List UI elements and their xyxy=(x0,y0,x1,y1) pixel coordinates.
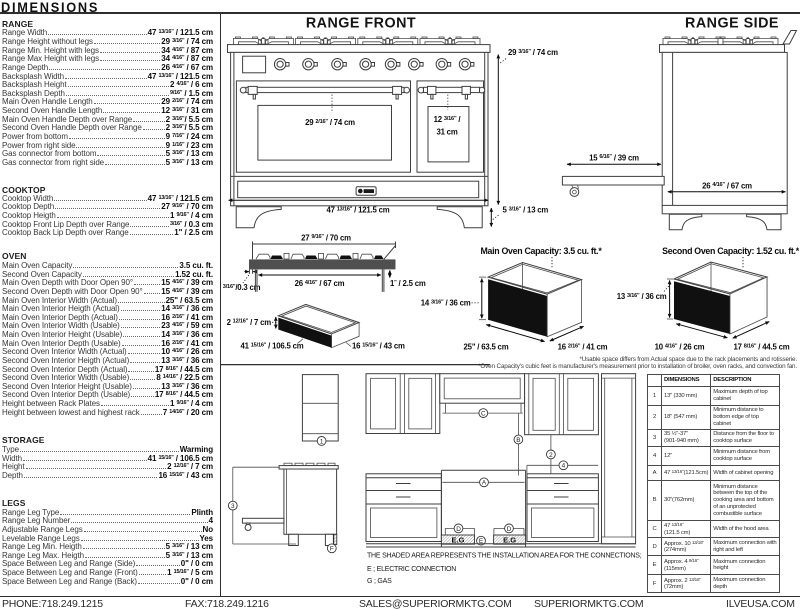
svg-text:47 13/16" / 121.5 cm: 47 13/16" / 121.5 cm xyxy=(327,206,390,215)
svg-text:E.G: E.G xyxy=(452,536,465,545)
svg-text:26 4/16" / 67 cm: 26 4/16" / 67 cm xyxy=(295,279,345,288)
svg-text:16 15/16" / 43 cm: 16 15/16" / 43 cm xyxy=(352,342,405,351)
svg-text:1: 1 xyxy=(320,438,324,445)
svg-text:D: D xyxy=(456,526,461,533)
svg-text:10 4/16" / 26 cm: 10 4/16" / 26 cm xyxy=(655,343,705,352)
svg-text:E.G: E.G xyxy=(503,536,516,545)
svg-text:RANGE FRONT: RANGE FRONT xyxy=(306,16,416,32)
svg-text:E ; ELECTRIC CONNECTION: E ; ELECTRIC CONNECTION xyxy=(367,566,456,573)
svg-text:5 3/16" / 13 cm: 5 3/16" / 13 cm xyxy=(503,206,549,215)
svg-text:A: A xyxy=(482,480,487,487)
svg-text:29 2/16" / 74 cm: 29 2/16" / 74 cm xyxy=(305,118,355,127)
svg-text:1" / 2.5 cm: 1" / 2.5 cm xyxy=(390,279,426,288)
svg-text:F: F xyxy=(330,546,334,553)
svg-text:14 3/16" / 36 cm: 14 3/16" / 36 cm xyxy=(421,299,471,308)
svg-text:17 8/16" / 44.5 cm: 17 8/16" / 44.5 cm xyxy=(734,343,790,352)
svg-text:27 9/16" / 70 cm: 27 9/16" / 70 cm xyxy=(301,233,351,242)
svg-text:2: 2 xyxy=(549,452,553,459)
svg-text:2 12/16" / 7 cm: 2 12/16" / 7 cm xyxy=(227,318,272,327)
svg-text:RANGE SIDE: RANGE SIDE xyxy=(685,16,779,32)
svg-text:29 3/16" / 74 cm: 29 3/16" / 74 cm xyxy=(508,48,558,57)
svg-text:D: D xyxy=(507,526,512,533)
svg-text:15 6/16" / 39 cm: 15 6/16" / 39 cm xyxy=(589,153,639,162)
svg-text:*Oven Capacity's cubic feet is: *Oven Capacity's cubic feet is manufactu… xyxy=(478,363,797,370)
svg-text:G ; GAS: G ; GAS xyxy=(367,578,392,585)
svg-text:C: C xyxy=(481,411,486,418)
svg-text:41 15/16" / 106.5 cm: 41 15/16" / 106.5 cm xyxy=(241,342,304,351)
svg-text:4: 4 xyxy=(562,463,566,470)
svg-text:*Usable space differs from Act: *Usable space differs from Actual space … xyxy=(579,356,797,363)
svg-text:25" / 63.5 cm: 25" / 63.5 cm xyxy=(464,343,509,352)
svg-text:Main Oven Capacity: 3.5 cu. ft: Main Oven Capacity: 3.5 cu. ft.* xyxy=(481,246,603,256)
svg-text:Second Oven Capacity: 1.52 cu.: Second Oven Capacity: 1.52 cu. ft.* xyxy=(662,246,800,256)
svg-text:31 cm: 31 cm xyxy=(436,128,457,137)
svg-text:3: 3 xyxy=(231,503,235,510)
svg-text:16 2/16" / 41 cm: 16 2/16" / 41 cm xyxy=(558,343,608,352)
svg-text:THE SHADED AREA REPRESENTS THE: THE SHADED AREA REPRESENTS THE INSTALLAT… xyxy=(367,553,642,560)
svg-text:B: B xyxy=(516,437,520,444)
svg-text:26 4/16" / 67 cm: 26 4/16" / 67 cm xyxy=(702,181,752,190)
svg-text:13 3/16" / 36 cm: 13 3/16" / 36 cm xyxy=(617,292,667,301)
